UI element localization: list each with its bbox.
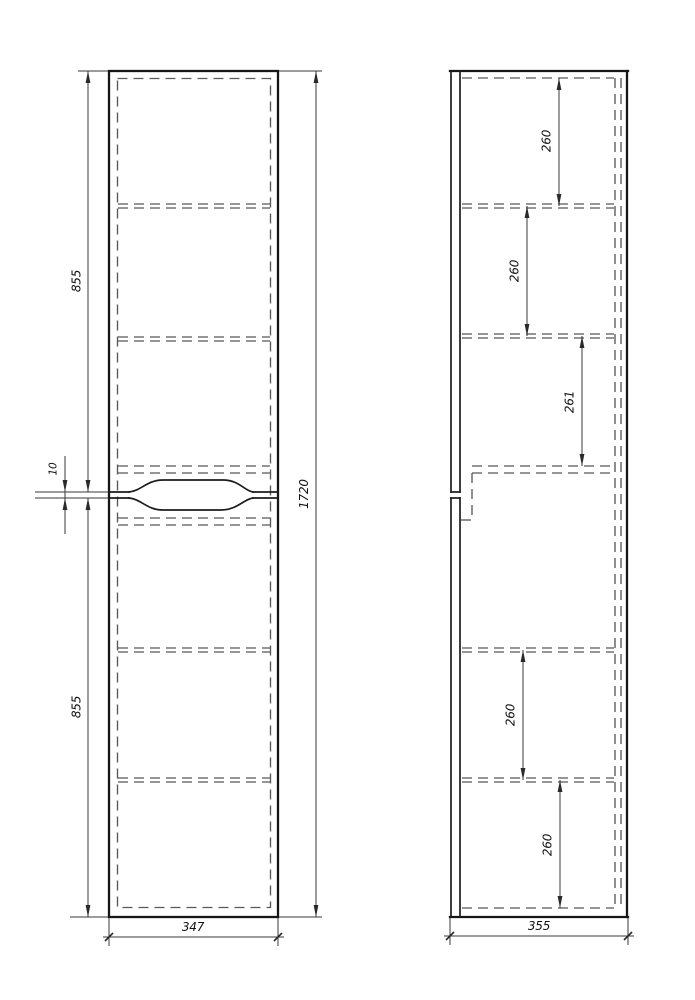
- front-shelf-lines: [118, 204, 270, 782]
- drawing-canvas: 855 855 10 1720 347: [0, 0, 695, 1000]
- dim-label-355: 355: [528, 919, 550, 933]
- side-hidden-lines: [461, 78, 621, 908]
- dim-label-260-2: 260: [508, 259, 522, 282]
- dim-label-855-upper: 855: [70, 270, 84, 292]
- dim-label-260-1: 260: [540, 129, 554, 152]
- dim-label-10: 10: [48, 462, 60, 475]
- door-gap-handle: [109, 480, 278, 510]
- dim-label-260-5: 260: [541, 833, 555, 856]
- side-door-edge: [451, 71, 460, 917]
- front-outline: [109, 71, 278, 917]
- side-view: 260 260 261 260 260 355: [444, 71, 634, 945]
- handle-groove-bottom: [129, 498, 253, 510]
- handle-groove-top: [129, 480, 253, 492]
- dim-label-855-lower: 855: [70, 696, 84, 718]
- dim-label-261: 261: [563, 391, 577, 413]
- front-hidden-outline: [118, 79, 271, 908]
- dim-label-347: 347: [182, 920, 205, 934]
- cabinet-technical-drawing: 855 855 10 1720 347: [0, 0, 695, 1000]
- dim-label-260-4: 260: [504, 703, 518, 726]
- front-view: 855 855 10 1720 347: [35, 71, 322, 946]
- dim-label-1720: 1720: [297, 479, 311, 509]
